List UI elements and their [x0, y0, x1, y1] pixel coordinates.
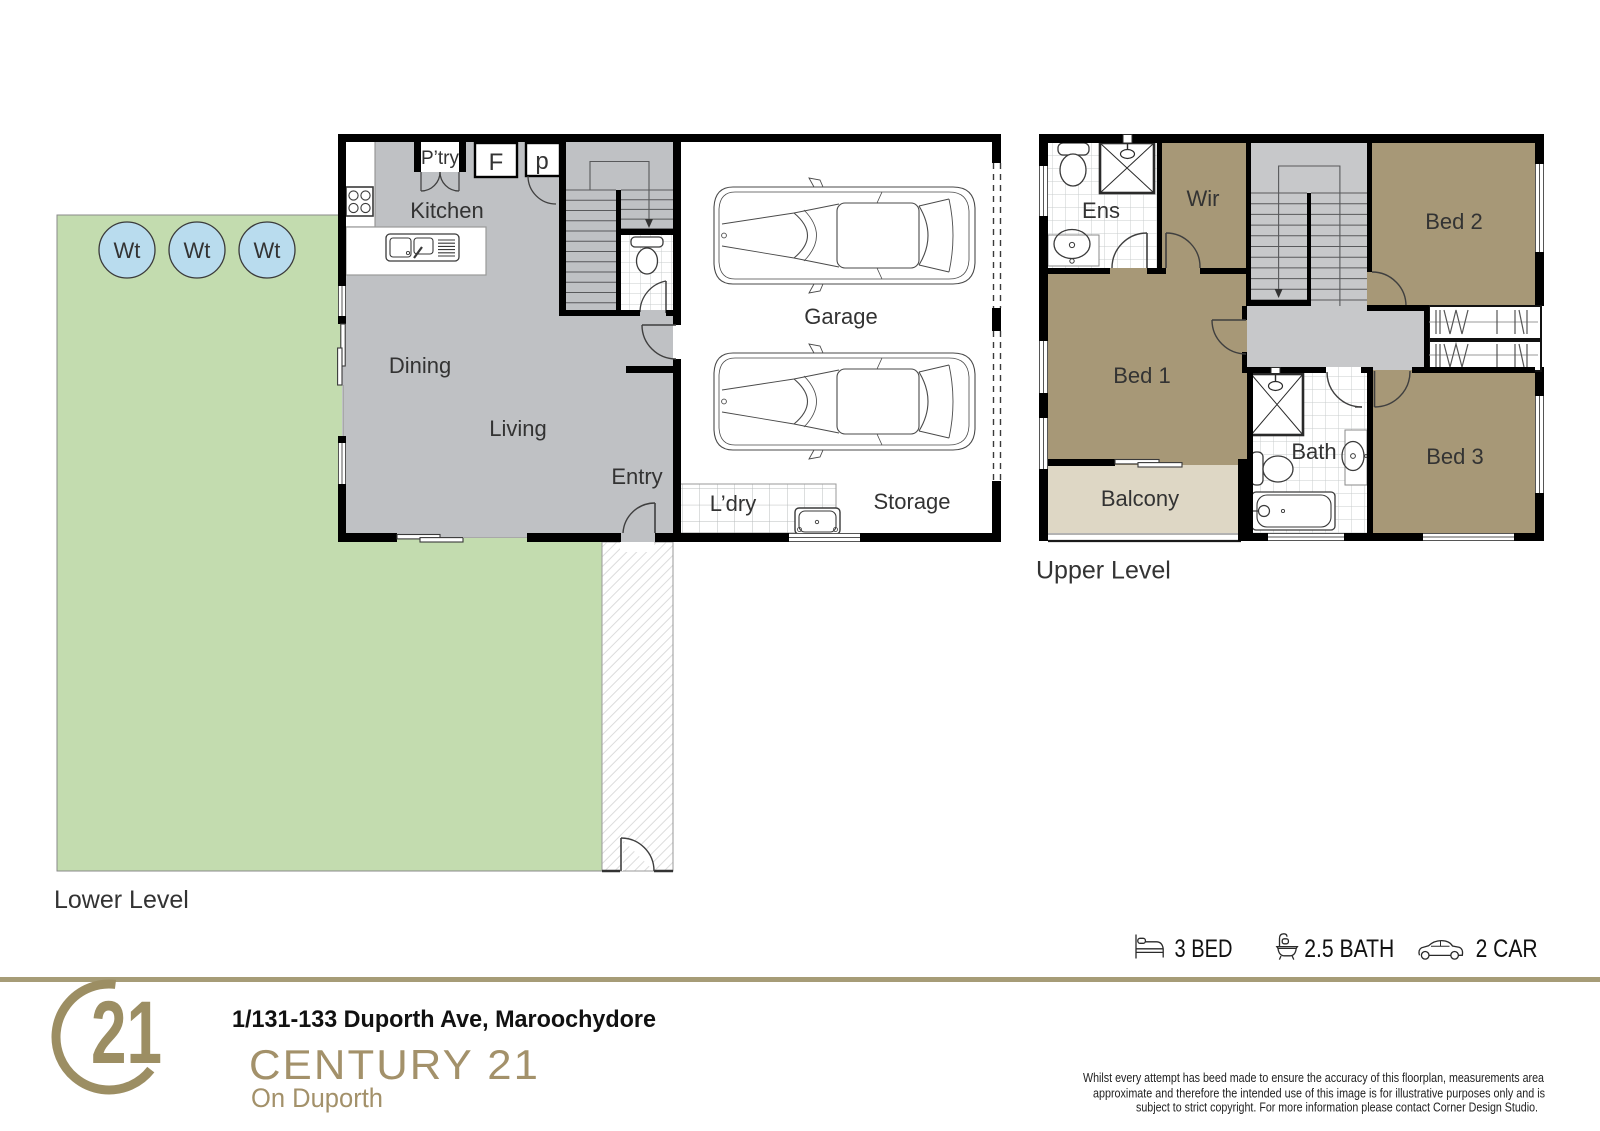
svg-text:Wt: Wt — [184, 238, 211, 263]
svg-text:approximate and therefore the: approximate and therefore the intended u… — [1093, 1086, 1545, 1101]
svg-text:3 BED: 3 BED — [1175, 935, 1233, 963]
svg-text:Storage: Storage — [873, 489, 950, 514]
svg-text:p: p — [535, 148, 548, 175]
svg-text:Bed 1: Bed 1 — [1113, 363, 1171, 388]
svg-text:21: 21 — [91, 982, 162, 1082]
svg-text:2.5 BATH: 2.5 BATH — [1304, 935, 1394, 963]
svg-text:Garage: Garage — [804, 304, 877, 329]
svg-text:P’try: P’try — [421, 148, 460, 169]
svg-text:Ens: Ens — [1082, 198, 1120, 223]
svg-text:Wir: Wir — [1187, 186, 1220, 211]
svg-text:Whilst every attempt has beed: Whilst every attempt has beed made to en… — [1083, 1070, 1545, 1085]
svg-text:Wt: Wt — [254, 238, 281, 263]
svg-text:Bath: Bath — [1291, 439, 1336, 464]
svg-text:Living: Living — [489, 416, 546, 441]
svg-text:Bed 3: Bed 3 — [1426, 444, 1484, 469]
svg-text:Bed 2: Bed 2 — [1425, 209, 1483, 234]
svg-text:Wt: Wt — [114, 238, 141, 263]
svg-text:Upper Level: Upper Level — [1036, 557, 1171, 585]
svg-text:F: F — [489, 149, 504, 176]
svg-text:On Duporth: On Duporth — [251, 1083, 383, 1113]
svg-text:Kitchen: Kitchen — [410, 198, 483, 223]
svg-text:Lower Level: Lower Level — [54, 886, 189, 914]
svg-text:Balcony: Balcony — [1101, 486, 1179, 511]
svg-text:Dining: Dining — [389, 353, 451, 378]
svg-text:subject to strict copyright. F: subject to strict copyright. For more in… — [1136, 1100, 1538, 1115]
svg-text:L’dry: L’dry — [710, 491, 756, 516]
svg-text:CENTURY 21: CENTURY 21 — [249, 1041, 540, 1088]
svg-text:1/131-133 Duporth Ave, Marooch: 1/131-133 Duporth Ave, Maroochydore — [232, 1006, 656, 1033]
svg-text:2 CAR: 2 CAR — [1476, 935, 1538, 963]
svg-text:Entry: Entry — [611, 464, 662, 489]
